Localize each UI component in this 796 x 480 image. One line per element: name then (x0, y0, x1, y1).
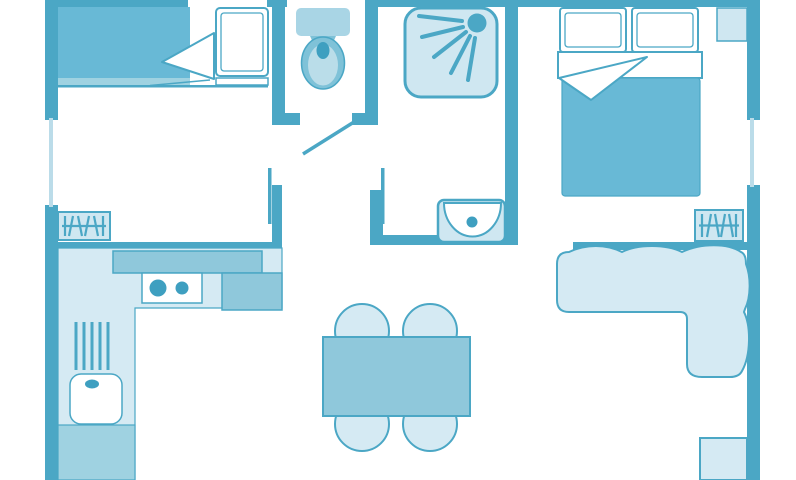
kitchen (58, 248, 282, 480)
washbasin (438, 200, 505, 242)
single-bed (58, 7, 268, 88)
bed-nook-partition-wall (272, 0, 300, 125)
kitchen-worktop-right (222, 273, 282, 310)
corner-sofa (557, 245, 750, 377)
bathroom-bedroom-wall (505, 0, 518, 245)
toilet-drain-icon (317, 42, 330, 59)
single-bed-pillow (216, 8, 268, 76)
radiator-left (58, 212, 110, 240)
top-wall-right (370, 0, 760, 7)
door-leaf-right (381, 168, 385, 224)
corner-cabinet (700, 438, 747, 480)
kitchen-tap-icon (85, 380, 99, 389)
double-bed-blanket (562, 78, 700, 196)
dining-table (323, 337, 470, 416)
toilet-door-swing (303, 122, 354, 154)
hall-wall-stub (272, 185, 282, 250)
radiator-right (695, 210, 743, 241)
hob-burner-small-icon (176, 282, 189, 295)
top-wall-left (45, 0, 188, 7)
toilet (296, 8, 350, 89)
left-wall-upper (45, 0, 58, 120)
door-leaf-left (268, 168, 272, 224)
floor-plan-canvas (0, 0, 796, 480)
window-left (49, 118, 53, 207)
toilet-tank (296, 8, 350, 36)
shower (405, 8, 497, 97)
right-wall-upper (747, 0, 760, 120)
shower-head-icon (468, 14, 487, 33)
dining-set (323, 304, 470, 451)
double-bed (558, 8, 702, 196)
kitchen-worktop-back (113, 251, 262, 273)
single-bed-blanket (58, 7, 190, 78)
nightstand (717, 8, 747, 41)
toilet-partition-wall (352, 0, 378, 125)
kitchen-lower-cabinet (58, 425, 135, 480)
washbasin-drain-icon (467, 217, 478, 228)
window-right (750, 118, 754, 187)
hob-burner-large-icon (150, 280, 167, 297)
single-bed-foot-band (216, 78, 268, 85)
double-bed-pillow-left (560, 8, 626, 52)
floor-plan-drawing (0, 0, 796, 480)
double-bed-pillow-right (632, 8, 698, 52)
